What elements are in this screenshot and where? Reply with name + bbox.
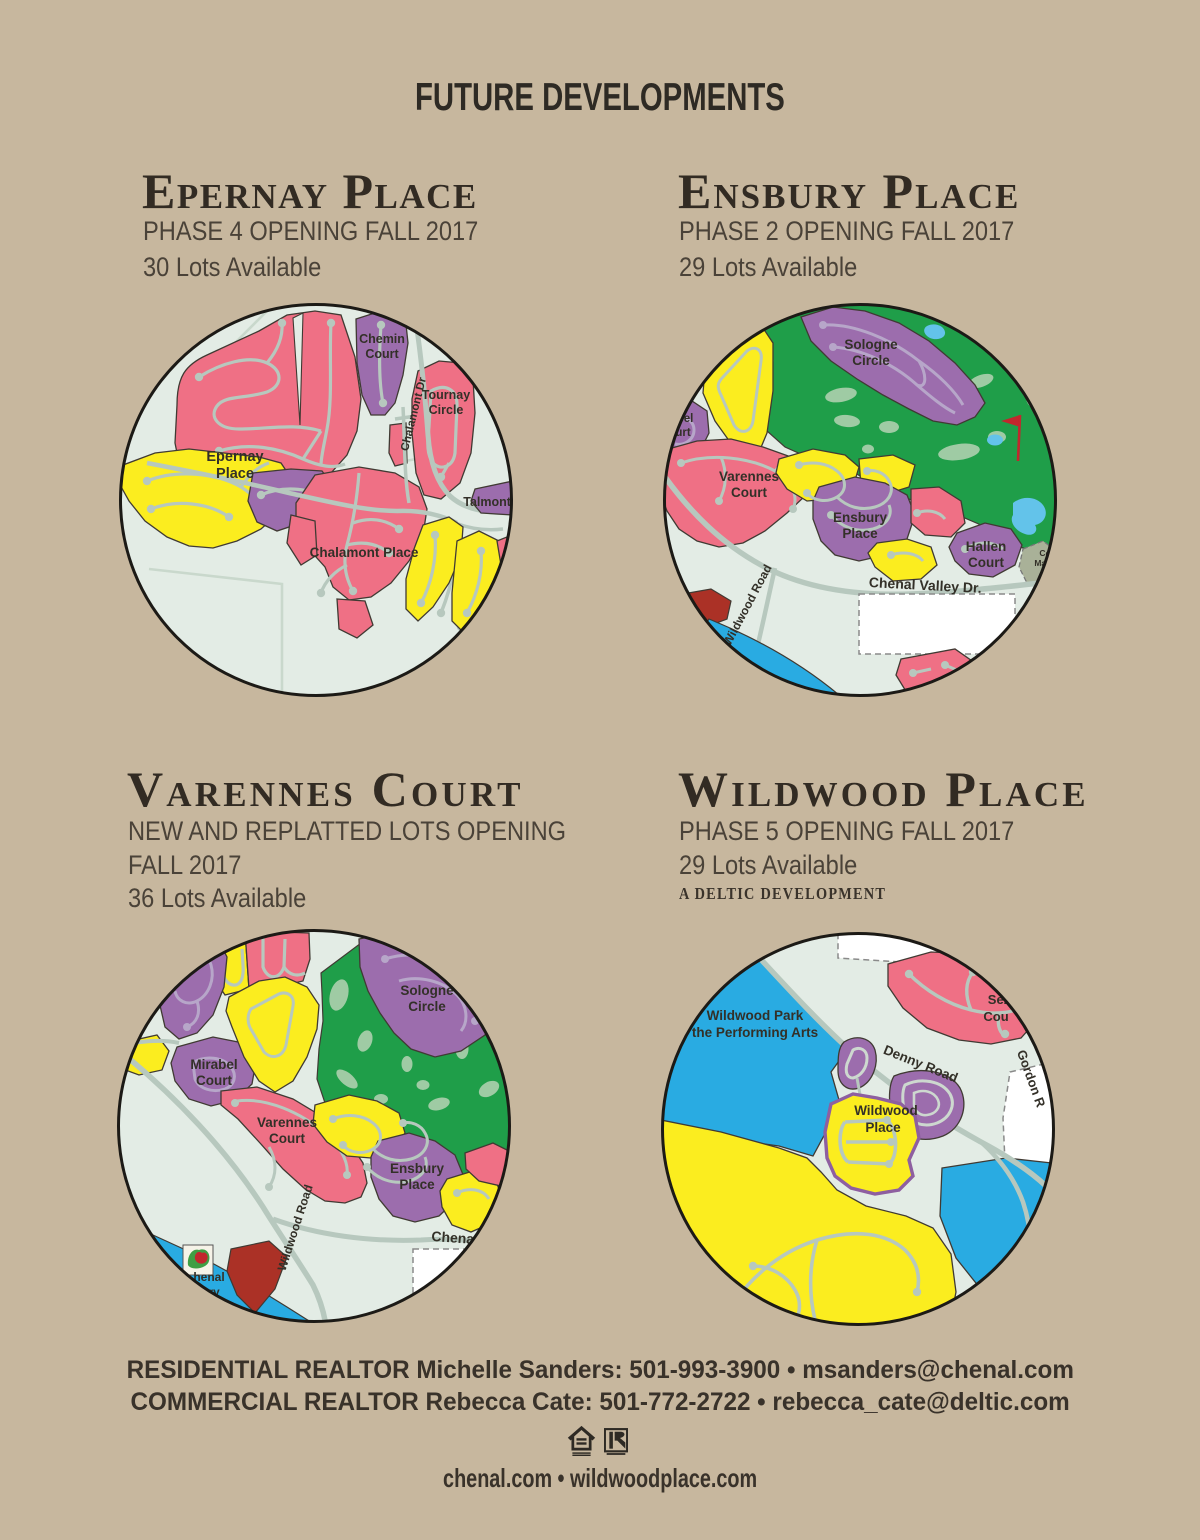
svg-text:Cou: Cou [983, 1009, 1008, 1024]
svg-text:Place: Place [842, 526, 878, 541]
svg-text:Epernay: Epernay [206, 449, 263, 465]
svg-text:Hallen: Hallen [966, 539, 1007, 554]
svg-text:ce: ce [172, 960, 186, 974]
svg-text:Sologne: Sologne [844, 337, 898, 352]
svg-text:Circle: Circle [408, 999, 446, 1014]
svg-text:Chalamont Place: Chalamont Place [310, 545, 419, 560]
svg-text:Chemin: Chemin [359, 332, 405, 346]
svg-text:Tournay: Tournay [422, 388, 470, 402]
svg-text:Place: Place [865, 1120, 901, 1135]
svg-text:Wildwood Park: Wildwood Park [707, 1008, 804, 1023]
svg-text:Court: Court [365, 347, 399, 361]
svg-text:Sologne: Sologne [400, 983, 454, 998]
svg-text:Varennes: Varennes [257, 1115, 317, 1130]
svg-text:Place: Place [216, 466, 254, 482]
svg-text:Mirabel: Mirabel [190, 1057, 237, 1072]
svg-text:Court: Court [968, 555, 1004, 570]
svg-text:Talmont P: Talmont P [463, 495, 513, 509]
svg-text:Court: Court [196, 1073, 232, 1088]
svg-text:Circle: Circle [429, 403, 464, 417]
svg-text:Court: Court [269, 1131, 305, 1146]
svg-text:the Performing Arts: the Performing Arts [692, 1025, 818, 1040]
svg-text:Court: Court [731, 485, 767, 500]
svg-text:Circle: Circle [852, 353, 890, 368]
svg-text:Ensbury: Ensbury [390, 1161, 445, 1176]
svg-text:Varennes: Varennes [719, 469, 779, 484]
svg-text:Ensbury: Ensbury [833, 510, 888, 525]
svg-text:Place: Place [399, 1177, 435, 1192]
svg-text:Wildwood: Wildwood [854, 1103, 918, 1118]
